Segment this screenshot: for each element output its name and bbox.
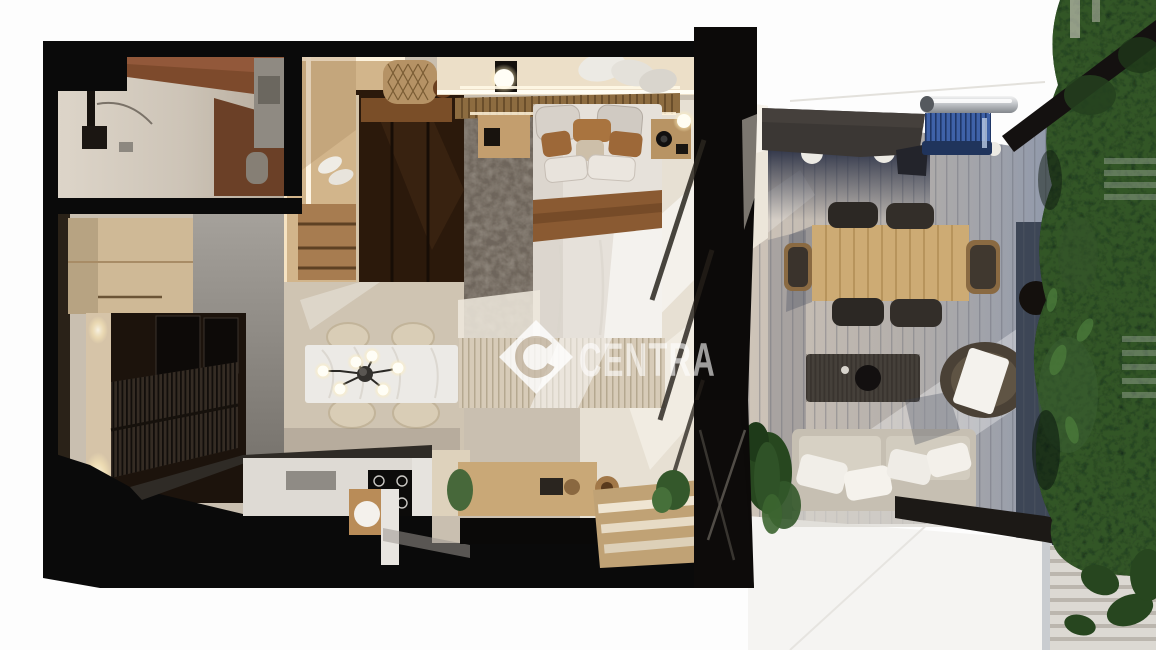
svg-text:CENTRA: CENTRA <box>579 335 716 387</box>
